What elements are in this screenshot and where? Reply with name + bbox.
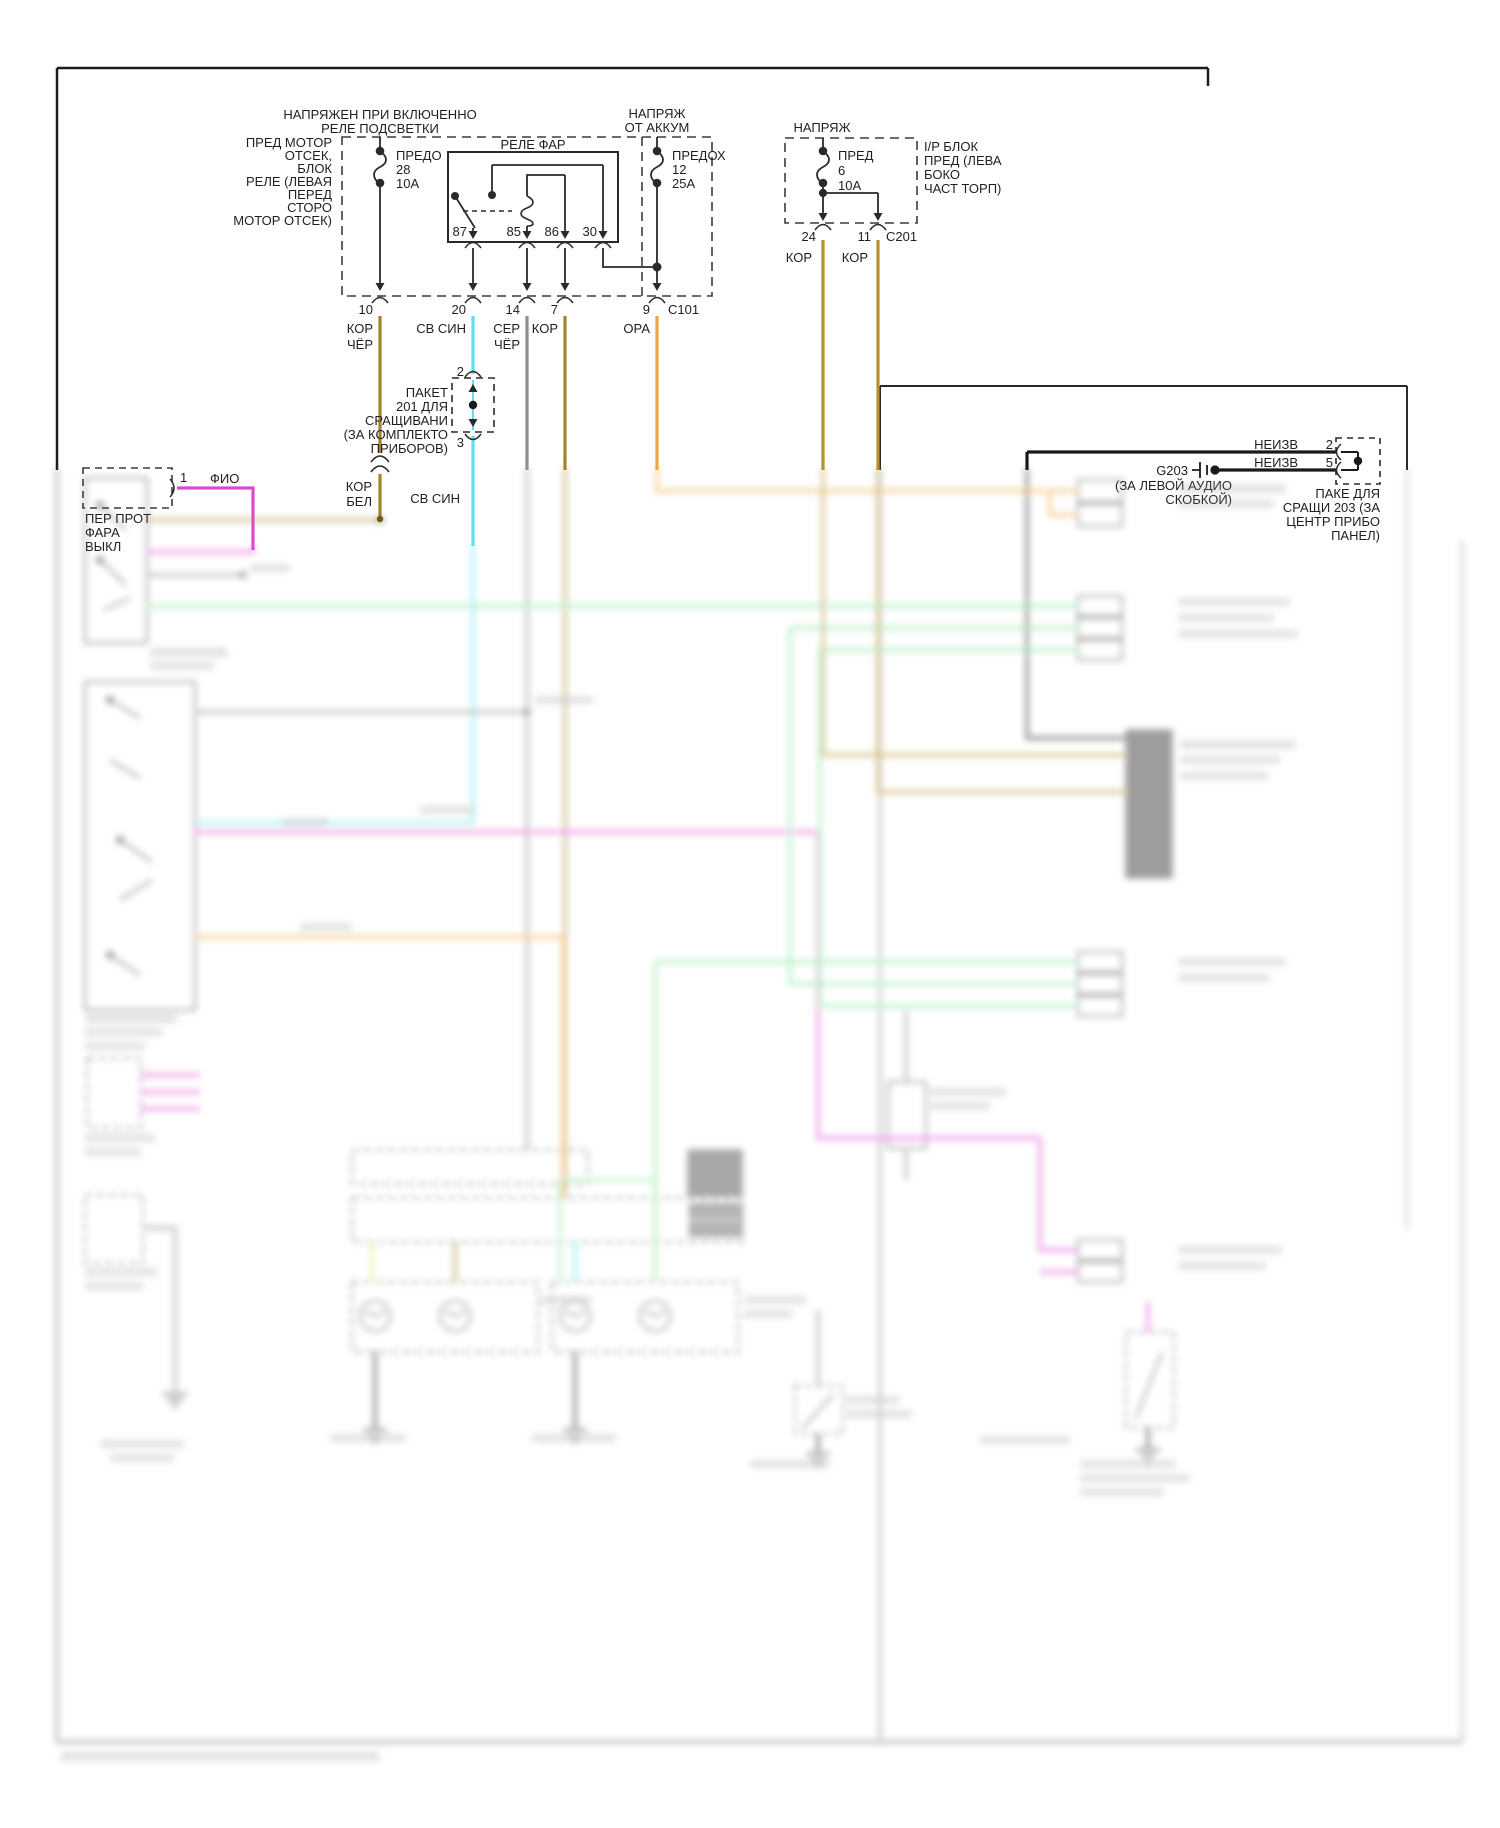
feed-headers: НАПРЯЖЕН ПРИ ВКЛЮЧЕННО РЕЛЕ ПОДСВЕТКИ НА…	[283, 106, 850, 136]
neizv2-label: НЕИЗВ	[1254, 437, 1298, 452]
svg-text:СВ СИН: СВ СИН	[410, 491, 460, 506]
pin-11: 11	[858, 229, 872, 244]
svg-text:БОКО: БОКО	[924, 167, 960, 182]
headlamp-relay: РЕЛЕ ФАР 87 85 86 30	[448, 137, 618, 286]
svg-text:25А: 25А	[672, 176, 695, 191]
svg-text:ПРЕДОХ: ПРЕДОХ	[672, 148, 726, 163]
ip-block-label: I/P БЛОК ПРЕД (ЛЕВА БОКО ЧАСТ ТОРП)	[924, 139, 1002, 196]
svg-text:30: 30	[583, 224, 597, 239]
svg-text:ПРИБОРОВ): ПРИБОРОВ)	[371, 441, 448, 456]
splice-203-label: ПАКЕ ДЛЯ СРАЩИ 203 (ЗА ЦЕНТР ПРИБО ПАНЕЛ…	[1283, 486, 1380, 543]
wire-break-symbol	[371, 456, 389, 472]
neizv5-label: НЕИЗВ	[1254, 455, 1298, 470]
svg-text:ОРА: ОРА	[623, 321, 650, 336]
svg-text:28: 28	[396, 162, 410, 177]
svg-text:10А: 10А	[838, 178, 861, 193]
svg-text:ПРЕД: ПРЕД	[838, 148, 874, 163]
svg-text:ФАРА: ФАРА	[85, 525, 120, 540]
svg-text:ЦЕНТР ПРИБО: ЦЕНТР ПРИБО	[1286, 514, 1380, 529]
svg-text:ПАКЕ ДЛЯ: ПАКЕ ДЛЯ	[1315, 486, 1380, 501]
header-battery-line2: ОТ АККУМ	[625, 120, 690, 135]
lower-wire-labels: КОР БЕЛ СВ СИН	[346, 479, 460, 509]
svg-text:I/P БЛОК: I/P БЛОК	[924, 139, 978, 154]
wire-kor-24-label: КОР	[786, 250, 812, 265]
header-illumination-line2: РЕЛЕ ПОДСВЕТКИ	[321, 121, 439, 136]
wire-kor-11-label: КОР	[842, 250, 868, 265]
splice-pack-203	[1336, 438, 1380, 484]
svg-text:БЕЛ: БЕЛ	[346, 494, 372, 509]
svg-text:ВЫКЛ: ВЫКЛ	[85, 539, 121, 554]
svg-text:ЧАСТ ТОРП): ЧАСТ ТОРП)	[924, 181, 1001, 196]
splice-201-label: ПАКЕТ 201 ДЛЯ СРАЩИВАНИ (ЗА КОМПЛЕКТО ПР…	[344, 385, 448, 456]
fuse-6-label: ПРЕД 6 10А	[838, 148, 874, 193]
ground-g203-icon	[1192, 462, 1220, 478]
svg-text:20: 20	[452, 302, 466, 317]
neizv2-pin: 2	[1326, 437, 1333, 452]
svg-text:10: 10	[359, 302, 373, 317]
wire-color-labels: КОР ЧЁР СВ СИН СЕР ЧЁР КОР ОРА	[347, 321, 651, 352]
svg-text:КОР: КОР	[347, 321, 373, 336]
svg-text:87: 87	[453, 224, 467, 239]
wiring-diagram-page: НАПРЯЖЕН ПРИ ВКЛЮЧЕННО РЕЛЕ ПОДСВЕТКИ НА…	[0, 0, 1500, 1828]
svg-text:ПРЕДО: ПРЕДО	[396, 148, 442, 163]
pin-24: 24	[802, 229, 816, 244]
svg-text:СРАЩИВАНИ: СРАЩИВАНИ	[365, 413, 448, 428]
fuse-block-exit-pins: 10 20 14 7 9	[359, 302, 650, 317]
blur-right-connectors	[795, 480, 1174, 1434]
fog-switch-label: ПЕР ПРОТ ФАРА ВЫКЛ	[85, 511, 151, 554]
splice-201-pin-bottom: 3	[457, 435, 464, 450]
fuse-28	[374, 137, 386, 286]
svg-text:ПАКЕТ: ПАКЕТ	[406, 385, 448, 400]
blur-component-b	[85, 682, 195, 1010]
svg-text:ЧЁР: ЧЁР	[347, 337, 373, 352]
svg-text:85: 85	[507, 224, 521, 239]
svg-text:ЧЁР: ЧЁР	[494, 337, 520, 352]
g203-name: G203	[1156, 463, 1188, 478]
header-battery-line1: НАПРЯЖ	[628, 106, 685, 121]
svg-text:КОР: КОР	[532, 321, 558, 336]
svg-text:9: 9	[643, 302, 650, 317]
ip-fuse-block: ПРЕД 6 10А 24 11 C201 КОР КОР I/P БЛОК П…	[785, 138, 1002, 265]
blur-text-smudges	[60, 484, 1298, 1761]
wire-fio-label: ФИО	[210, 471, 239, 486]
svg-text:201 ДЛЯ: 201 ДЛЯ	[396, 399, 448, 414]
svg-text:СВ СИН: СВ СИН	[416, 321, 466, 336]
svg-text:КОР: КОР	[346, 479, 372, 494]
svg-text:86: 86	[545, 224, 559, 239]
header-ip-voltage: НАПРЯЖ	[793, 120, 850, 135]
fog-switch-pin: 1	[180, 470, 187, 485]
splice-201-pin-top: 2	[457, 364, 464, 379]
fuse-28-label: ПРЕДО 28 10А	[396, 148, 442, 191]
svg-text:ПРЕД (ЛЕВА: ПРЕД (ЛЕВА	[924, 153, 1002, 168]
svg-text:ПАНЕЛ): ПАНЕЛ)	[1331, 528, 1380, 543]
blurred-lower-diagram	[57, 468, 1462, 1761]
neizv5-pin: 5	[1326, 455, 1333, 470]
relay-title: РЕЛЕ ФАР	[500, 137, 565, 152]
fuse-block-exit-connectors	[372, 283, 665, 303]
svg-text:МОТОР ОТСЕК): МОТОР ОТСЕК)	[233, 213, 332, 228]
blur-lamp-assemblies	[352, 1150, 742, 1352]
fuse-12-label: ПРЕДОХ 12 25А	[672, 148, 726, 191]
blur-ground-symbols	[163, 1394, 1160, 1466]
headlamp-wiring-schematic: НАПРЯЖЕН ПРИ ВКЛЮЧЕННО РЕЛЕ ПОДСВЕТКИ НА…	[0, 0, 1500, 1828]
connector-c201: C201	[886, 229, 917, 244]
underhood-fuse-block-label: ПРЕД МОТОР ОТСЕК, БЛОК РЕЛЕ (ЛЕВАЯ ПЕРЕД…	[233, 135, 332, 228]
fuse-12	[603, 137, 663, 286]
svg-text:6: 6	[838, 163, 845, 178]
svg-text:14: 14	[506, 302, 520, 317]
svg-text:10А: 10А	[396, 176, 419, 191]
header-illumination-line1: НАПРЯЖЕН ПРИ ВКЛЮЧЕННО	[283, 107, 476, 122]
blur-component-a	[85, 478, 147, 643]
svg-text:7: 7	[551, 302, 558, 317]
svg-text:12: 12	[672, 162, 686, 177]
connector-c101: C101	[668, 302, 699, 317]
svg-text:СРАЩИ 203 (ЗА: СРАЩИ 203 (ЗА	[1283, 500, 1380, 515]
svg-text:СЕР: СЕР	[493, 321, 520, 336]
svg-text:(ЗА КОМПЛЕКТО: (ЗА КОМПЛЕКТО	[344, 427, 448, 442]
